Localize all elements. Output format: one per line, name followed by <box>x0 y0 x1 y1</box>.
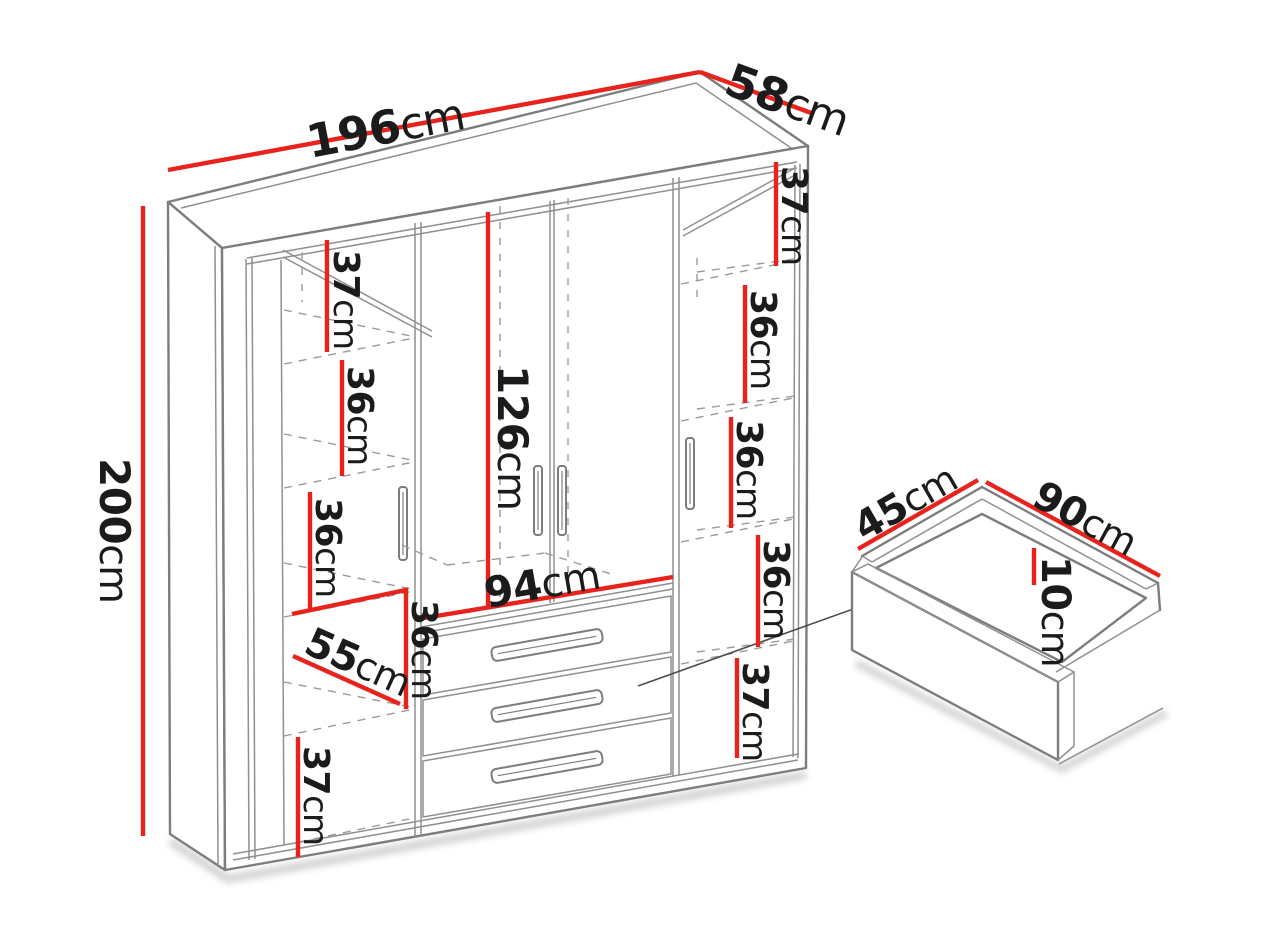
svg-text:37cm: 37cm <box>325 250 366 349</box>
svg-text:36cm: 36cm <box>755 540 796 639</box>
svg-text:36cm: 36cm <box>339 366 380 465</box>
dim-hanging-label: 126cm <box>488 365 537 510</box>
svg-text:37cm: 37cm <box>773 166 814 265</box>
dim-height-label: 200cm <box>90 458 139 603</box>
wardrobe-diagram: 196cm 58cm 200cm 126cm 94cm 55cm 37cm 36… <box>0 0 1270 926</box>
dim-10-label: 10cm <box>1032 556 1078 667</box>
svg-text:36cm: 36cm <box>307 498 348 597</box>
svg-text:37cm: 37cm <box>295 746 336 845</box>
svg-text:36cm: 36cm <box>742 290 783 389</box>
svg-text:36cm: 36cm <box>728 420 769 519</box>
svg-text:37cm: 37cm <box>734 662 775 761</box>
svg-text:36cm: 36cm <box>403 600 444 699</box>
diagram-page: 196cm 58cm 200cm 126cm 94cm 55cm 37cm 36… <box>0 0 1270 926</box>
